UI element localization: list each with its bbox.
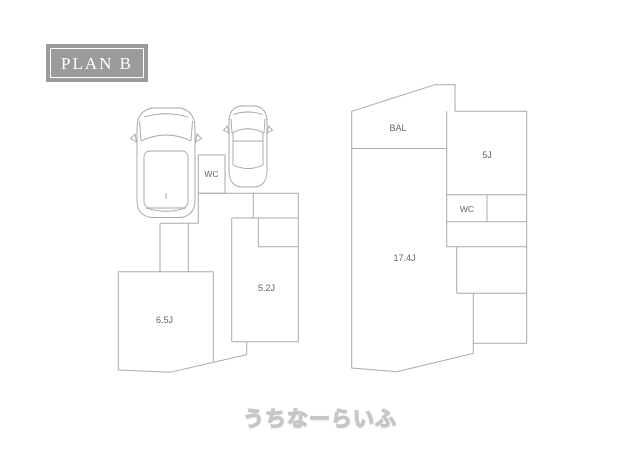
right-building: BAL 5J WC 17.4J [352, 85, 527, 372]
room-label-right-wc: WC [460, 204, 474, 214]
site-watermark: うちなーらいふ [0, 403, 640, 433]
room-label-5j: 5J [482, 150, 492, 160]
car-minivan [131, 108, 202, 218]
room-label-6-5j: 6.5J [156, 315, 173, 325]
floorplan-page: PLAN B WC [0, 0, 640, 452]
room-label-5-2j: 5.2J [258, 283, 275, 293]
right-building-outline [352, 85, 527, 372]
room-label-left-wc: WC [204, 169, 218, 179]
car-compact [224, 106, 273, 187]
room-label-17-4j: 17.4J [393, 253, 415, 263]
floorplan-drawing: WC 5.2J 6.5J BAL 5J WC 17.4J [0, 0, 640, 452]
room-label-balcony: BAL [389, 123, 406, 133]
left-building: WC 5.2J 6.5J [118, 155, 298, 372]
